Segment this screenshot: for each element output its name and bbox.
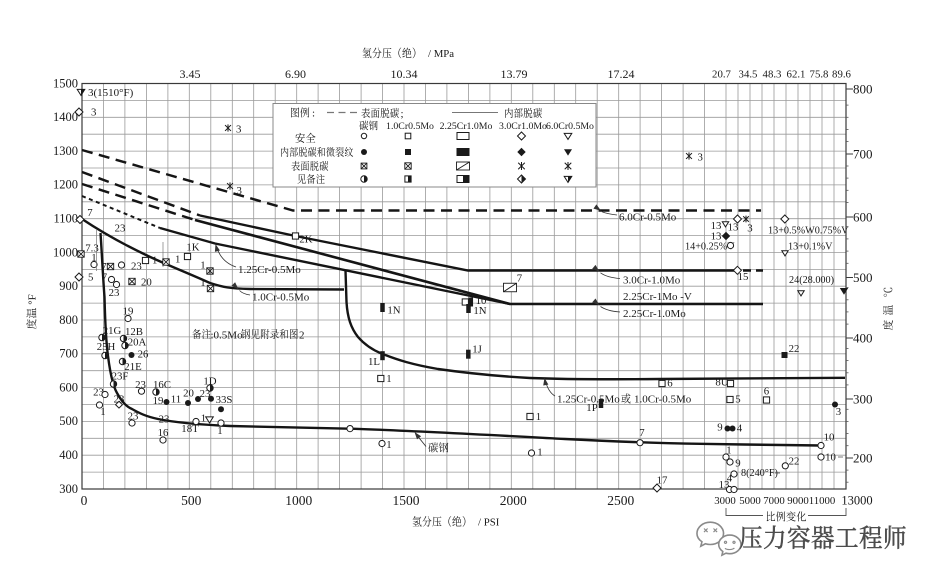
svg-text:7000: 7000 (763, 495, 785, 507)
svg-text:1.25Cr-0.5Mo: 1.25Cr-0.5Mo (238, 264, 301, 276)
svg-text:1J: 1J (472, 344, 482, 356)
svg-text:62.1: 62.1 (787, 69, 806, 81)
svg-text:600: 600 (853, 210, 873, 225)
svg-text:500: 500 (59, 414, 78, 428)
svg-text:23: 23 (115, 223, 126, 235)
svg-text:500: 500 (853, 270, 873, 285)
svg-text:75.8: 75.8 (810, 69, 829, 81)
svg-text:1K: 1K (186, 242, 199, 254)
svg-text:3: 3 (836, 406, 841, 418)
svg-text:5000: 5000 (739, 495, 761, 507)
svg-text::0.5Mo: :0.5Mo (211, 329, 244, 341)
svg-text:3: 3 (698, 152, 703, 164)
svg-text:1: 1 (726, 445, 731, 457)
svg-text:17.24: 17.24 (608, 67, 635, 81)
svg-text:9: 9 (735, 458, 740, 470)
svg-text:3: 3 (236, 124, 241, 136)
svg-text:800: 800 (853, 82, 873, 97)
svg-text:1N: 1N (387, 305, 400, 317)
svg-text:800: 800 (59, 313, 78, 327)
svg-text:7: 7 (517, 273, 523, 285)
svg-text:2.25Cr-1.0Mo: 2.25Cr-1.0Mo (623, 308, 686, 320)
svg-text:/ PSI: / PSI (478, 517, 500, 529)
svg-text:89.6: 89.6 (832, 69, 851, 81)
svg-text:3(1510°F): 3(1510°F) (88, 87, 134, 99)
svg-text:9: 9 (717, 422, 722, 434)
svg-text:1: 1 (201, 413, 206, 425)
svg-text:26: 26 (138, 349, 149, 361)
svg-text:3: 3 (747, 223, 752, 235)
svg-text:6.0Cr-0.5Mo: 6.0Cr-0.5Mo (619, 211, 677, 223)
svg-text:1500: 1500 (393, 493, 420, 508)
svg-text:15: 15 (738, 271, 749, 283)
svg-text:300: 300 (853, 392, 873, 407)
svg-text:5: 5 (735, 394, 740, 406)
svg-text::: : (312, 107, 315, 119)
svg-text:1100: 1100 (53, 212, 78, 226)
svg-text:1: 1 (536, 411, 541, 423)
svg-text:10.34: 10.34 (391, 67, 418, 81)
svg-text:2000: 2000 (500, 493, 527, 508)
svg-text:1: 1 (175, 254, 180, 266)
svg-text:23: 23 (131, 261, 142, 273)
svg-text:3000: 3000 (714, 495, 736, 507)
svg-text:13: 13 (728, 222, 739, 234)
svg-text:1400: 1400 (53, 110, 78, 124)
svg-text:1: 1 (386, 373, 391, 385)
svg-text:23: 23 (159, 414, 170, 426)
svg-text:1: 1 (217, 425, 222, 437)
svg-text:3.0Cr-1.0Mo: 3.0Cr-1.0Mo (623, 274, 681, 286)
svg-text:9000: 9000 (787, 495, 809, 507)
svg-text:8U: 8U (715, 377, 728, 389)
svg-text:24(28.000): 24(28.000) (789, 275, 834, 286)
svg-text:3.0Cr1.0Mo: 3.0Cr1.0Mo (499, 121, 547, 132)
svg-text:34.5: 34.5 (739, 69, 758, 81)
svg-text:3.45: 3.45 (180, 67, 201, 81)
svg-text:;: ; (401, 108, 404, 120)
svg-text:25H: 25H (97, 341, 116, 353)
svg-text:1200: 1200 (53, 178, 78, 192)
svg-text:4: 4 (737, 423, 743, 435)
svg-text:1: 1 (100, 406, 105, 418)
svg-text:21G: 21G (103, 325, 122, 337)
svg-text:1: 1 (200, 260, 205, 272)
svg-text:6: 6 (764, 386, 770, 398)
svg-text:1: 1 (386, 439, 391, 451)
svg-text:2.25Cr-1Mo -V: 2.25Cr-1Mo -V (623, 291, 692, 303)
svg-text:7: 7 (102, 272, 108, 284)
svg-text:20A: 20A (128, 337, 147, 349)
svg-text:10: 10 (824, 432, 835, 444)
svg-text:1.0Cr-0.5Mo: 1.0Cr-0.5Mo (634, 393, 692, 405)
svg-text:10: 10 (825, 452, 836, 464)
svg-text:3: 3 (91, 107, 96, 119)
svg-text:7: 7 (639, 427, 645, 439)
svg-text:8(240°F): 8(240°F) (741, 468, 778, 479)
svg-text:300: 300 (59, 482, 78, 496)
svg-text:1000: 1000 (53, 245, 78, 259)
svg-text:700: 700 (59, 347, 78, 361)
svg-text:2K: 2K (299, 234, 312, 246)
svg-text:1.0Cr-0.5Mo: 1.0Cr-0.5Mo (252, 291, 310, 303)
svg-text:13.79: 13.79 (501, 67, 528, 81)
svg-text:°F: °F (26, 294, 38, 305)
svg-text:400: 400 (59, 448, 78, 462)
svg-text:6.0Cr0.5Mo: 6.0Cr0.5Mo (546, 121, 594, 132)
svg-text:1300: 1300 (53, 144, 78, 158)
svg-text:6.90: 6.90 (285, 67, 306, 81)
svg-text:23: 23 (109, 287, 120, 299)
svg-text:20.7: 20.7 (712, 69, 731, 81)
svg-text:1: 1 (200, 277, 205, 289)
svg-text:500: 500 (181, 493, 202, 508)
svg-text:2: 2 (299, 329, 305, 341)
svg-text:20: 20 (183, 388, 194, 400)
svg-text:200: 200 (853, 451, 873, 466)
svg-text:22: 22 (789, 456, 800, 468)
svg-text:1L: 1L (368, 356, 380, 368)
svg-text:/ MPa: / MPa (428, 48, 454, 60)
svg-text:400: 400 (853, 331, 873, 346)
svg-text:22: 22 (789, 343, 800, 355)
svg-text:900: 900 (59, 279, 78, 293)
svg-text:5: 5 (88, 272, 93, 284)
svg-text:0: 0 (81, 493, 88, 508)
svg-text:11000: 11000 (809, 495, 836, 507)
svg-text:19: 19 (153, 395, 164, 407)
svg-text:13+0.1%V: 13+0.1%V (788, 242, 833, 253)
svg-text:1: 1 (537, 447, 542, 459)
svg-text:1000: 1000 (285, 493, 312, 508)
svg-text:1N: 1N (473, 305, 486, 317)
svg-text:20: 20 (141, 277, 152, 289)
svg-text:13000: 13000 (841, 494, 872, 508)
svg-text:48.3: 48.3 (763, 69, 782, 81)
svg-text:6: 6 (667, 378, 673, 390)
svg-text:11: 11 (171, 394, 181, 406)
svg-text:1.0Cr0.5Mo: 1.0Cr0.5Mo (386, 121, 434, 132)
svg-text:1: 1 (152, 255, 157, 267)
svg-text:1500: 1500 (53, 76, 78, 90)
svg-text:600: 600 (59, 380, 78, 394)
svg-text:2.25Cr1.0Mo: 2.25Cr1.0Mo (440, 121, 493, 132)
svg-text:13+0.5%W0.75%V: 13+0.5%W0.75%V (768, 226, 849, 237)
svg-text:33S: 33S (216, 394, 233, 406)
svg-text:2500: 2500 (607, 493, 634, 508)
svg-text:18T: 18T (181, 423, 199, 435)
svg-text:3: 3 (237, 185, 242, 197)
svg-text:700: 700 (853, 147, 873, 162)
svg-text:7: 7 (87, 207, 93, 219)
svg-text:1P: 1P (586, 402, 597, 414)
